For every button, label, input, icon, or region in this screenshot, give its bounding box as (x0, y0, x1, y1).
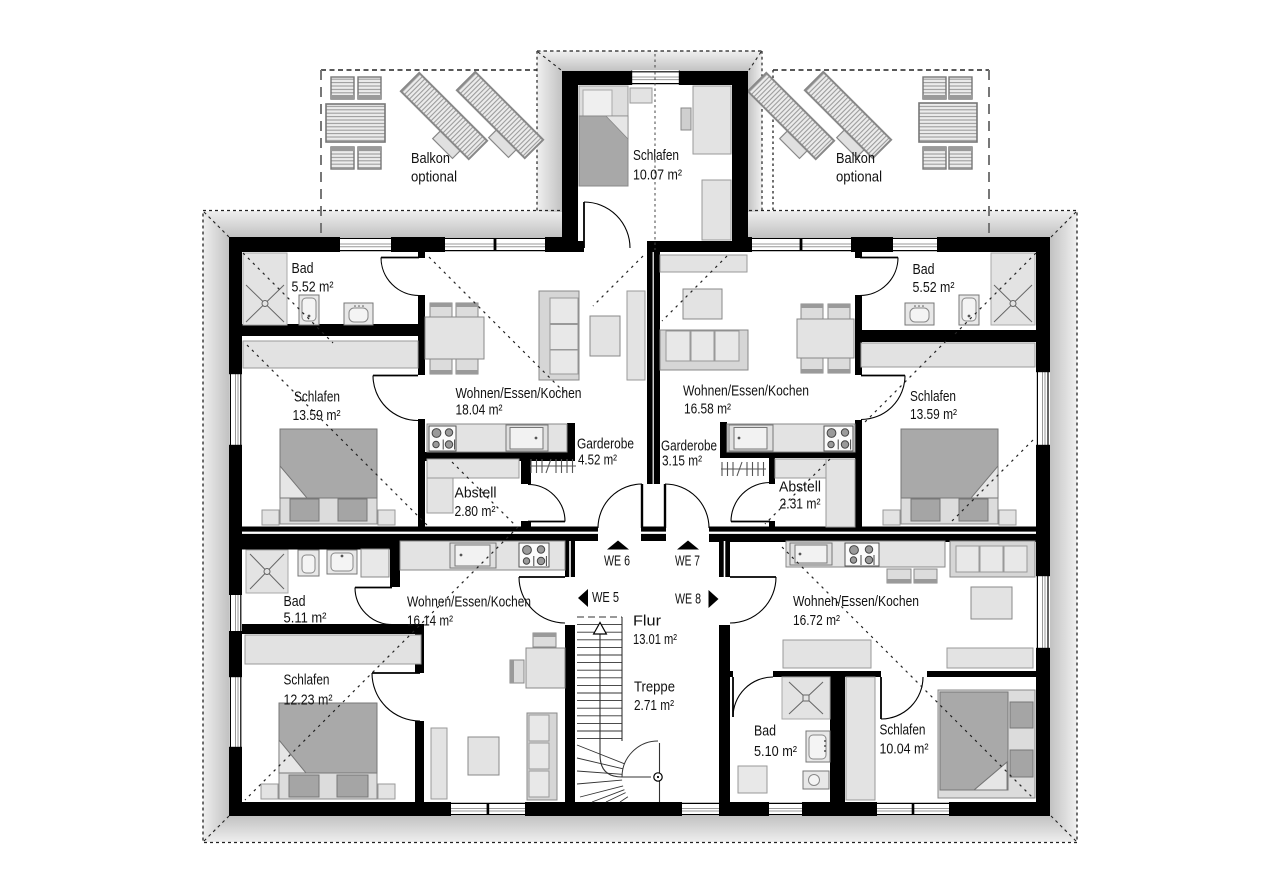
svg-text:5.11 m²: 5.11 m² (284, 611, 327, 627)
svg-text:Treppe: Treppe (634, 680, 675, 696)
svg-text:Abstell: Abstell (455, 486, 497, 502)
svg-text:4.52 m²: 4.52 m² (578, 453, 617, 469)
svg-text:Bad: Bad (292, 261, 314, 277)
svg-text:10.04 m²: 10.04 m² (880, 742, 929, 758)
svg-text:16.14 m²: 16.14 m² (407, 614, 453, 630)
svg-text:WE 5: WE 5 (592, 590, 619, 606)
svg-text:13.01 m²: 13.01 m² (633, 632, 677, 648)
svg-text:Bad: Bad (754, 724, 776, 740)
svg-text:16.72 m²: 16.72 m² (793, 613, 840, 629)
svg-text:3.15 m²: 3.15 m² (662, 454, 702, 470)
svg-text:Balkon: Balkon (411, 151, 450, 167)
svg-text:5.10 m²: 5.10 m² (754, 744, 797, 760)
svg-text:Abstell: Abstell (779, 480, 821, 496)
svg-text:5.52 m²: 5.52 m² (913, 280, 955, 296)
svg-text:Garderobe: Garderobe (661, 439, 717, 455)
svg-text:16.58 m²: 16.58 m² (684, 402, 731, 418)
svg-text:Balkon: Balkon (836, 151, 875, 167)
svg-text:Wohnen/Essen/Kochen: Wohnen/Essen/Kochen (793, 594, 919, 610)
svg-text:13.59 m²: 13.59 m² (293, 408, 341, 424)
svg-text:Schlafen: Schlafen (633, 148, 679, 164)
svg-text:Bad: Bad (913, 262, 935, 278)
svg-text:Schlafen: Schlafen (880, 723, 926, 739)
svg-text:5.52 m²: 5.52 m² (292, 280, 334, 296)
svg-text:Wohnen/Essen/Kochen: Wohnen/Essen/Kochen (407, 595, 531, 611)
svg-text:Bad: Bad (284, 594, 306, 610)
svg-text:Schlafen: Schlafen (910, 389, 956, 405)
svg-text:Wohnen/Essen/Kochen: Wohnen/Essen/Kochen (456, 386, 582, 402)
svg-text:optional: optional (836, 170, 882, 186)
svg-text:optional: optional (411, 170, 457, 186)
svg-text:12.23 m²: 12.23 m² (284, 693, 333, 709)
svg-text:Wohnen/Essen/Kochen: Wohnen/Essen/Kochen (683, 384, 809, 400)
svg-text:2.80 m²: 2.80 m² (455, 504, 496, 520)
svg-text:10.07 m²: 10.07 m² (633, 168, 682, 184)
svg-text:2.71 m²: 2.71 m² (634, 698, 674, 714)
svg-text:18.04 m²: 18.04 m² (456, 403, 503, 419)
svg-text:13.59 m²: 13.59 m² (910, 407, 957, 423)
svg-text:Garderobe: Garderobe (577, 437, 634, 453)
svg-text:2.31 m²: 2.31 m² (780, 497, 821, 513)
svg-text:Flur: Flur (633, 614, 661, 630)
svg-text:Schlafen: Schlafen (294, 390, 340, 406)
svg-text:WE 6: WE 6 (604, 554, 630, 570)
svg-text:WE 8: WE 8 (675, 592, 701, 608)
svg-text:WE 7: WE 7 (675, 554, 700, 570)
svg-text:Schlafen: Schlafen (284, 673, 330, 689)
